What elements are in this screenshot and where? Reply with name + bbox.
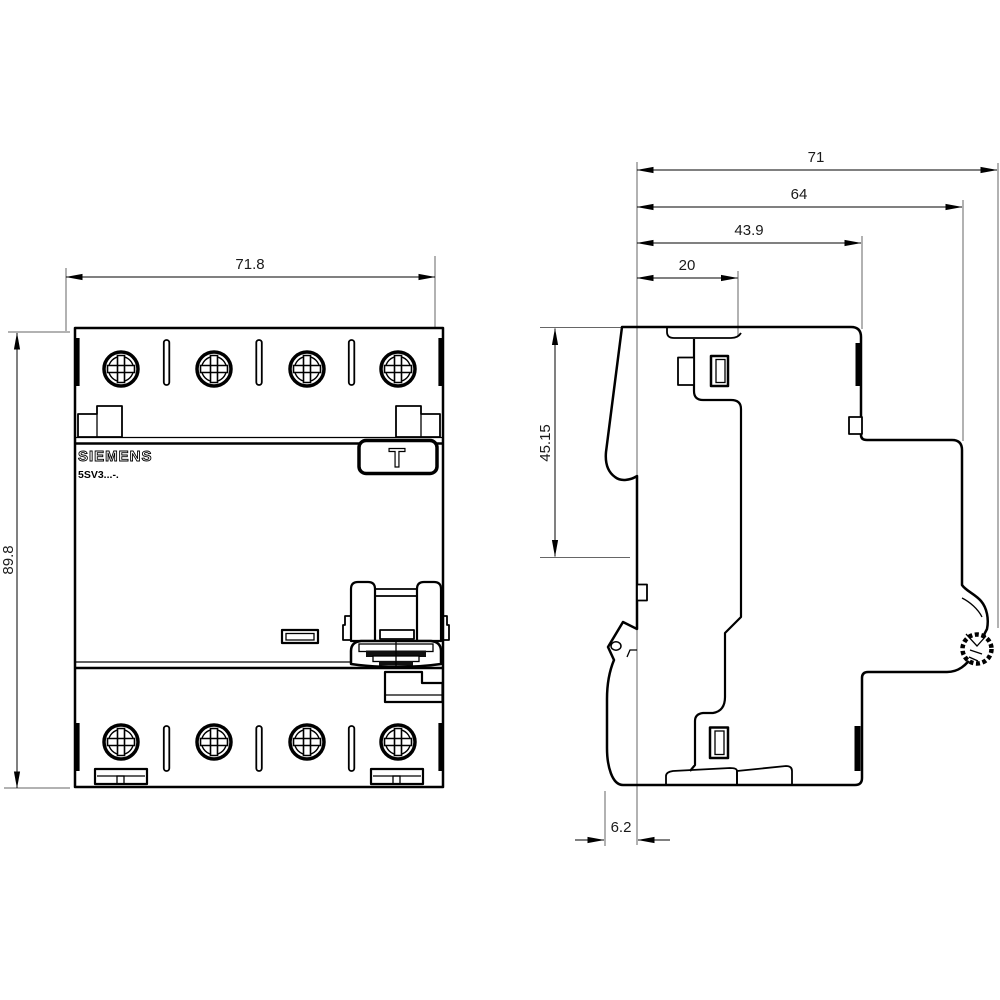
top-recess	[667, 327, 741, 338]
front-view: SIEMENS 5SV3...-. T	[75, 328, 449, 787]
dim-value: 6.2	[611, 819, 632, 836]
screw-icon	[197, 725, 231, 759]
model-label: 5SV3...-.	[78, 469, 119, 481]
screw-icon	[104, 725, 138, 759]
side-screw-top	[711, 356, 728, 386]
dim-front-width: 71.8	[66, 256, 435, 277]
technical-drawing-canvas: SIEMENS 5SV3...-. T	[0, 0, 1000, 1000]
test-button[interactable]: T	[359, 441, 437, 474]
front-latch	[637, 585, 647, 601]
dim-value: 20	[679, 257, 696, 274]
dim-top-to-din-center: 45.15	[537, 329, 555, 557]
test-button-label: T	[389, 443, 406, 473]
screw-icon	[197, 352, 231, 386]
dim-handle-protrusion: 6.2	[575, 819, 670, 840]
dim-terminal-recess-depth: 20	[637, 257, 738, 278]
dim-front-to-din-rail: 43.9	[637, 222, 861, 243]
dim-value: 89.8	[0, 545, 17, 574]
side-screw-bottom	[710, 728, 728, 759]
terminal-tab	[678, 358, 694, 386]
dim-front-height: 89.8	[0, 333, 17, 788]
dim-overall-depth: 71	[637, 149, 997, 170]
din-clip-knob	[963, 635, 992, 664]
rating-window	[282, 630, 318, 643]
screw-icon	[104, 352, 138, 386]
screw-icon	[381, 725, 415, 759]
side-toggle-lever[interactable]	[611, 642, 637, 657]
inner-terminal-contour	[690, 339, 741, 771]
side-view	[606, 327, 992, 785]
screw-icon	[290, 725, 324, 759]
dim-value: 71	[808, 149, 825, 166]
dim-value: 64	[791, 186, 808, 203]
dim-value: 71.8	[235, 256, 264, 273]
dim-value: 43.9	[734, 222, 763, 239]
side-body-outline	[606, 327, 988, 785]
screw-icon	[290, 352, 324, 386]
dimension-drawing: SIEMENS 5SV3...-. T	[0, 0, 1000, 1000]
side-feet	[666, 766, 792, 785]
dim-depth-without-clip: 64	[637, 186, 962, 207]
brand-label: SIEMENS	[78, 448, 153, 465]
front-body-outline	[75, 328, 443, 787]
dim-value: 45.15	[537, 424, 554, 462]
screw-icon	[381, 352, 415, 386]
